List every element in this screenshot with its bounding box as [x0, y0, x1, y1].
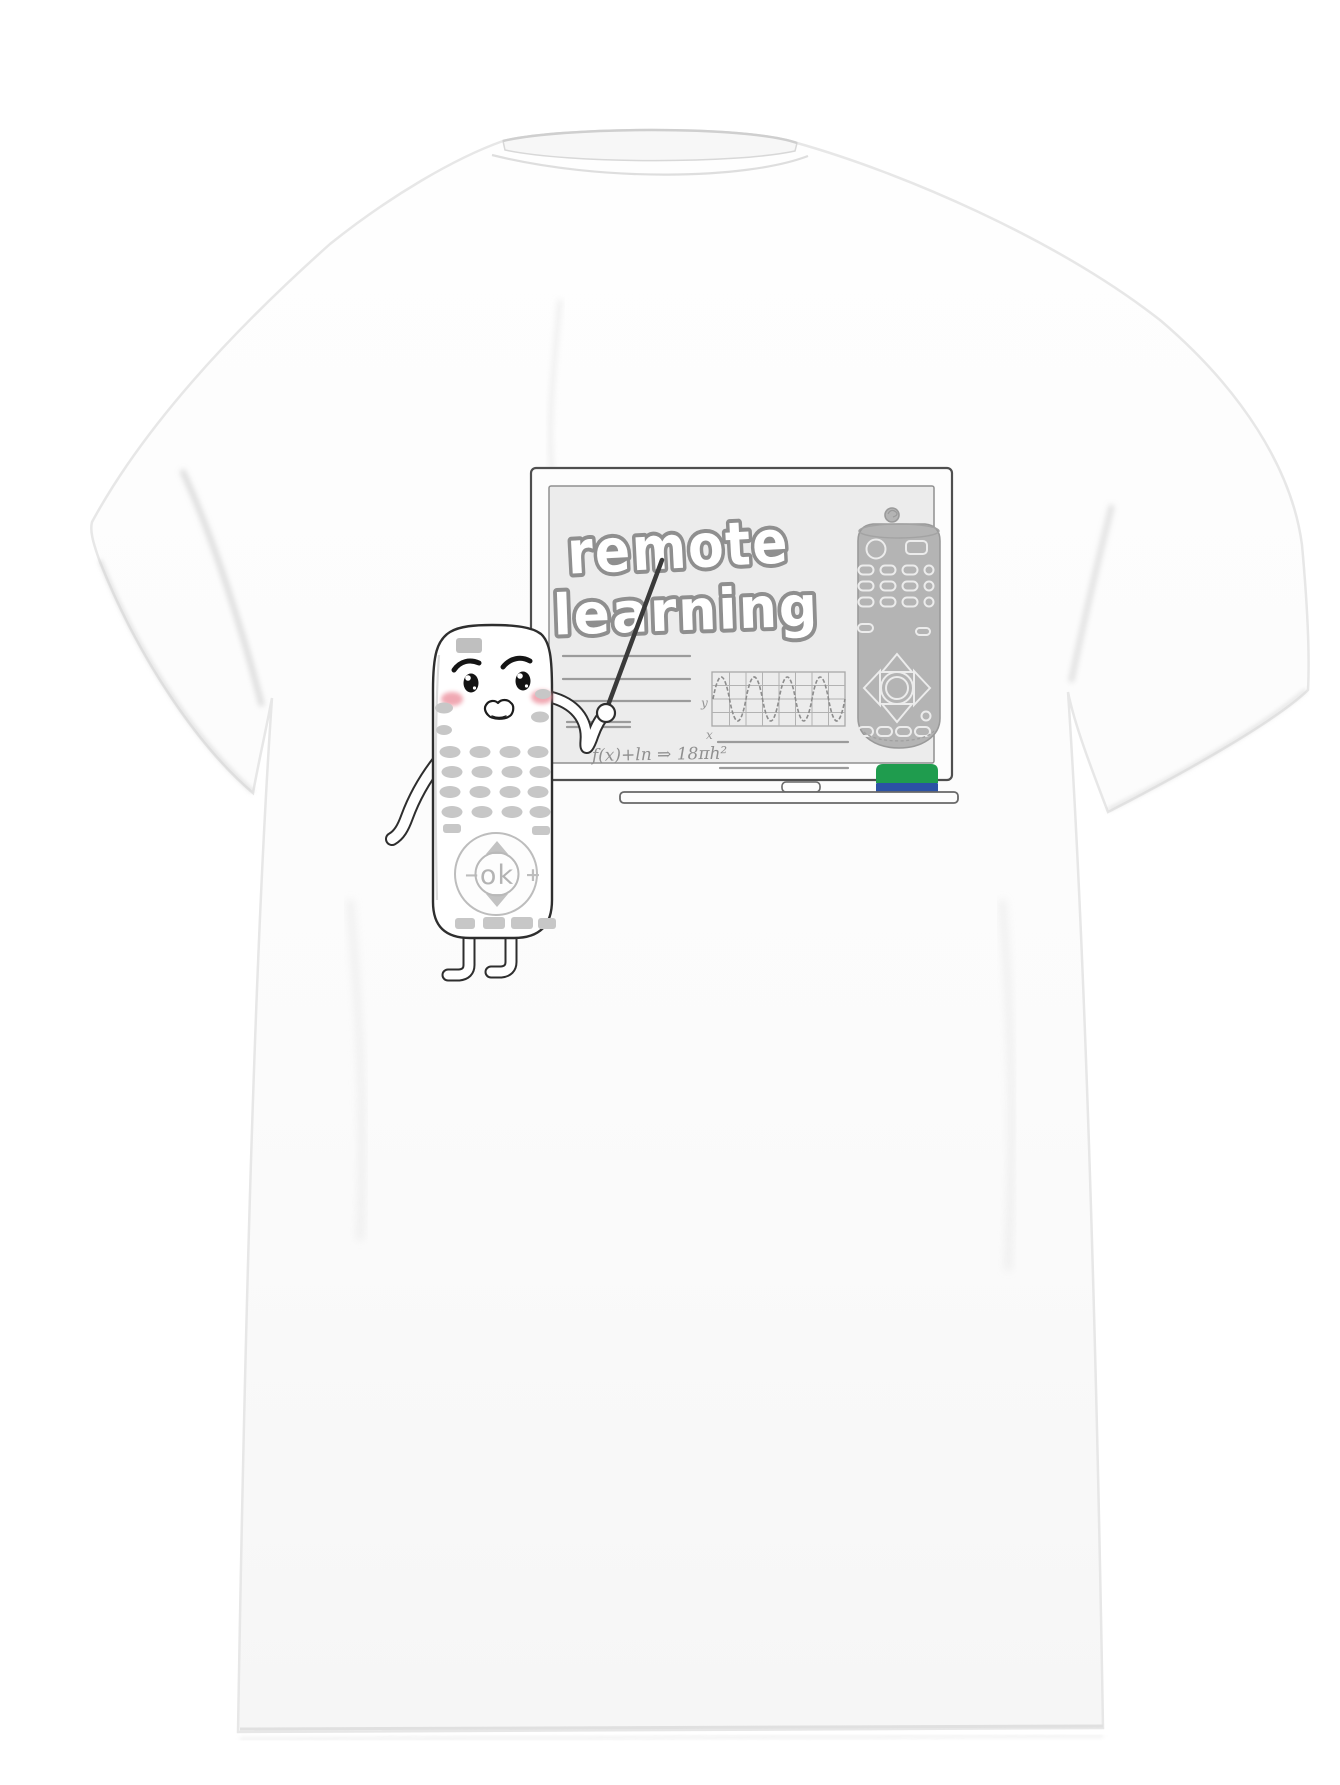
tray-bar	[620, 792, 958, 803]
remote-diagram	[858, 508, 940, 748]
whiteboard: remote learning y x f(x)+ln ⇒ 18πh²	[531, 468, 958, 803]
tray-marker	[782, 782, 820, 792]
ok-label: ok	[480, 860, 514, 891]
dpad-plus-label: +	[525, 864, 541, 886]
tshirt-product-photo: remote learning y x f(x)+ln ⇒ 18πh²	[0, 0, 1340, 1785]
character-forehead-button	[456, 638, 482, 653]
graph-axis-x-label: x	[706, 728, 713, 742]
right-hand	[597, 704, 615, 722]
tshirt-back	[91, 130, 1308, 1739]
board-title-line2: learning	[552, 574, 820, 648]
right-eye	[516, 672, 531, 691]
left-eye	[464, 674, 479, 693]
tshirt-body	[91, 130, 1308, 1732]
eraser-green-top	[876, 764, 938, 783]
whiteboard-eraser	[876, 764, 938, 794]
formula-scribble: f(x)+ln ⇒ 18πh²	[590, 744, 728, 766]
tshirt-photo-canvas: remote learning y x f(x)+ln ⇒ 18πh²	[0, 0, 1340, 1785]
bottom-hem-shadow	[240, 1736, 1103, 1739]
mouth	[485, 700, 513, 719]
graph-axis-y-label: y	[700, 696, 708, 710]
